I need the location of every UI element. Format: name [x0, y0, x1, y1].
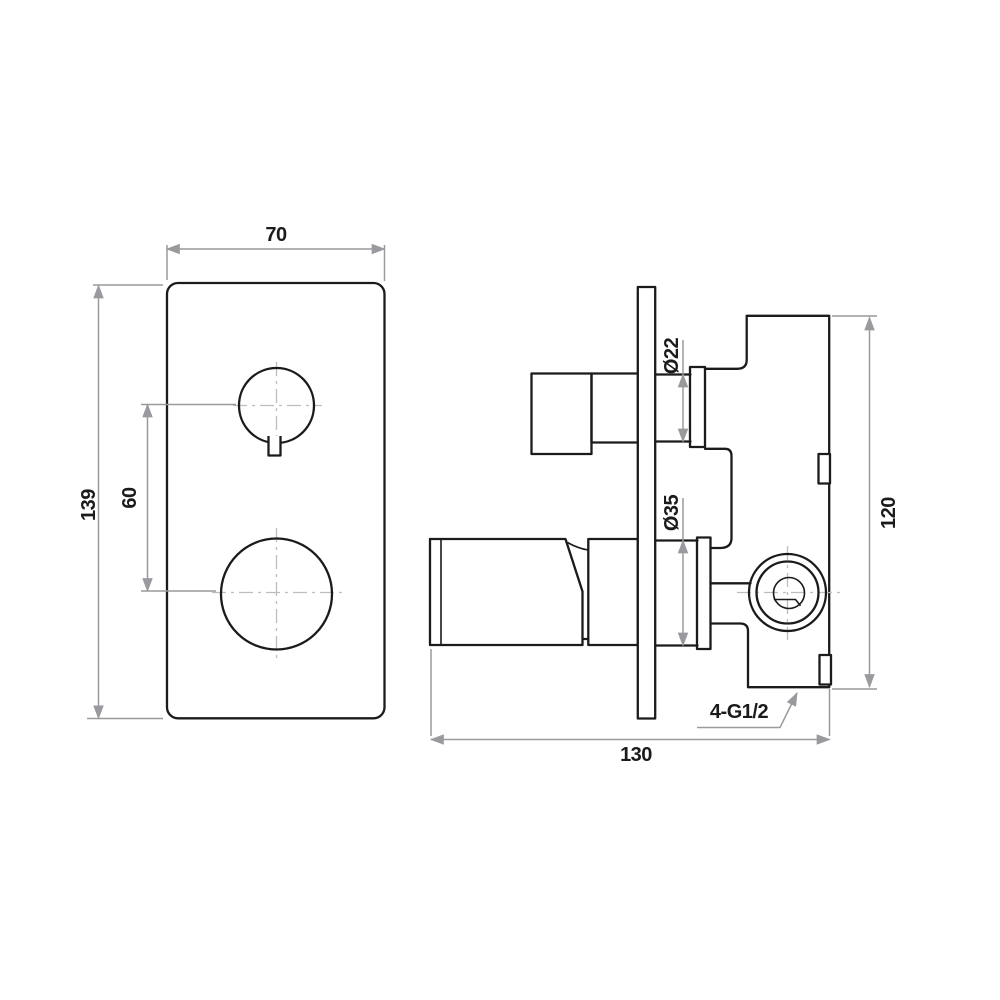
upper-stem-diameter-label: Ø22: [661, 337, 683, 374]
small-knob-circle: [239, 368, 314, 443]
knob-spacing-label: 60: [119, 487, 141, 509]
upper-port-notch: [819, 454, 831, 484]
overall-depth-label: 130: [620, 744, 652, 766]
plate-height-label: 139: [78, 489, 100, 521]
body-height-label: 120: [878, 497, 900, 529]
handle-base-cylinder: [588, 539, 638, 645]
plate-width-label: 70: [265, 224, 287, 246]
front-view: [167, 283, 385, 718]
handle-taper-outline: [430, 539, 588, 639]
top-knob-cap: [532, 374, 592, 455]
top-knob-stem: [592, 374, 639, 443]
lower-collar: [697, 538, 711, 650]
side-view: [430, 287, 844, 719]
valve-body-waist-outline: [705, 449, 732, 548]
side-plate: [638, 287, 655, 719]
technical-drawing: 70 139 60: [0, 0, 1000, 1000]
handle-body-outline: [430, 539, 583, 645]
front-view-dimensions: 70 139 60: [78, 224, 385, 719]
upper-collar: [690, 367, 705, 447]
handle-fillet-curve: [568, 543, 589, 551]
front-plate-outline: [167, 283, 385, 718]
lower-stem-diameter-label: Ø35: [661, 494, 683, 531]
small-knob-pointer-tab: [269, 436, 281, 456]
thread-ports-label: 4-G1/2: [710, 701, 769, 723]
lower-port-notch: [820, 655, 832, 685]
drawing-canvas: 70 139 60: [0, 0, 1000, 1000]
valve-body-outline: [705, 316, 829, 687]
